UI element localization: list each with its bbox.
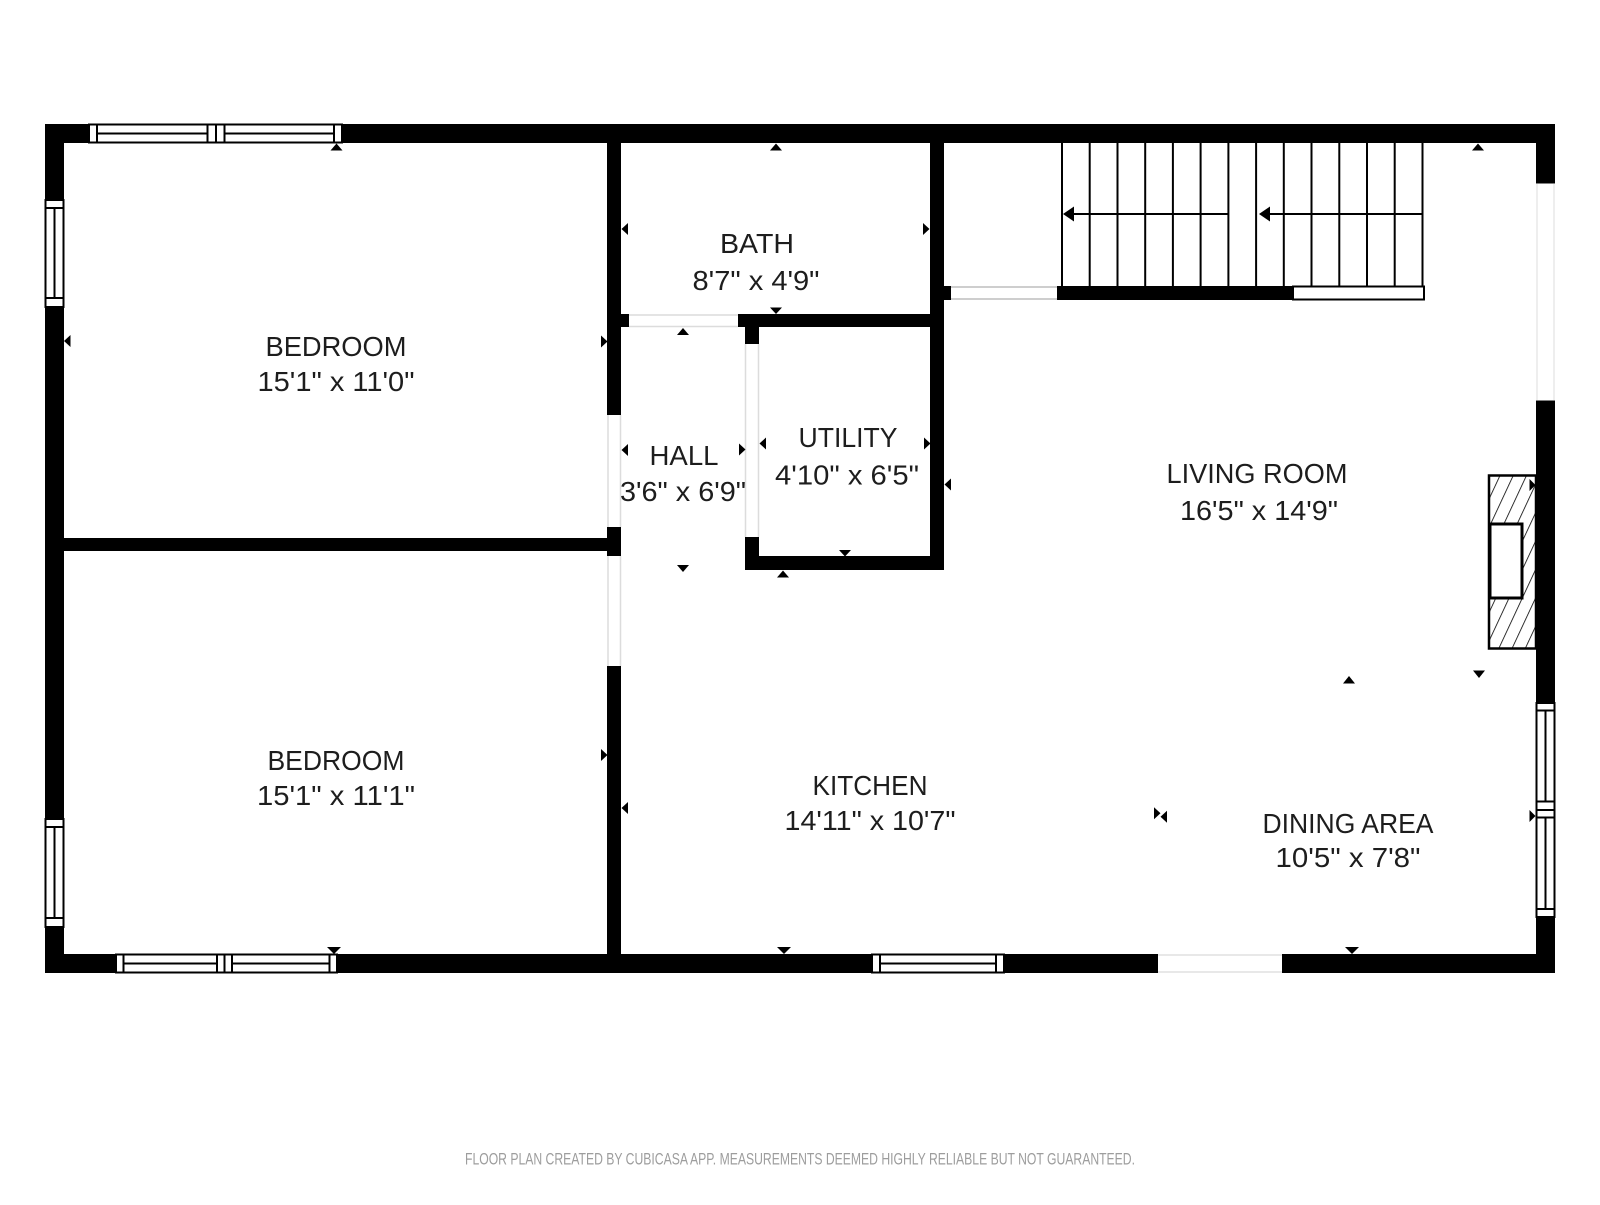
svg-text:UTILITY: UTILITY [799,422,898,453]
svg-text:FLOOR PLAN CREATED BY CUBICASA: FLOOR PLAN CREATED BY CUBICASA APP. MEAS… [465,1150,1135,1169]
svg-text:BEDROOM: BEDROOM [266,331,407,362]
svg-text:KITCHEN: KITCHEN [813,770,928,801]
svg-text:DINING AREA: DINING AREA [1263,808,1434,839]
svg-text:BATH: BATH [720,228,794,259]
svg-text:4'10" x 6'5": 4'10" x 6'5" [775,460,919,491]
svg-text:15'1" x 11'0": 15'1" x 11'0" [258,366,415,397]
svg-text:BEDROOM: BEDROOM [268,745,405,776]
svg-text:14'11" x 10'7": 14'11" x 10'7" [785,805,956,836]
svg-text:LIVING ROOM: LIVING ROOM [1167,458,1348,489]
svg-text:8'7" x 4'9": 8'7" x 4'9" [693,265,820,296]
svg-text:10'5" x 7'8": 10'5" x 7'8" [1276,842,1421,873]
svg-text:HALL: HALL [650,440,719,471]
svg-text:3'6" x 6'9": 3'6" x 6'9" [620,476,746,507]
svg-text:15'1" x 11'1": 15'1" x 11'1" [257,780,415,811]
svg-text:16'5" x 14'9": 16'5" x 14'9" [1180,495,1338,526]
